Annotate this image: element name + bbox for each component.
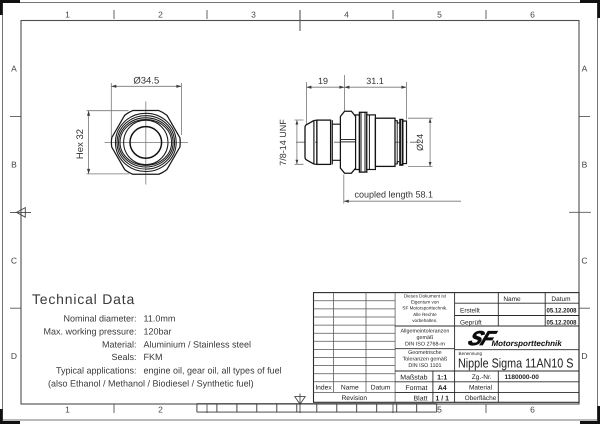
svg-text:5: 5 xyxy=(437,10,442,20)
svg-text:Ø24: Ø24 xyxy=(415,134,425,151)
svg-text:2: 2 xyxy=(158,10,163,20)
svg-text:05.12.2008: 05.12.2008 xyxy=(547,319,577,326)
svg-text:Geometrische: Geometrische xyxy=(408,350,442,356)
svg-text:7/8-14 UNF: 7/8-14 UNF xyxy=(278,119,288,166)
svg-text:A: A xyxy=(11,64,17,74)
svg-text:A: A xyxy=(582,64,588,74)
svg-text:Format: Format xyxy=(405,385,427,392)
svg-text:B: B xyxy=(582,159,588,169)
svg-text:Hex 32: Hex 32 xyxy=(75,129,86,159)
svg-text:1:1: 1:1 xyxy=(437,375,447,382)
svg-text:1: 1 xyxy=(65,10,70,20)
svg-text:05.12.2008: 05.12.2008 xyxy=(547,307,577,314)
svg-text:Oberfläche: Oberfläche xyxy=(465,395,497,402)
svg-text:DIN ISO 2768-m: DIN ISO 2768-m xyxy=(405,341,445,347)
svg-text:120bar: 120bar xyxy=(144,326,172,336)
svg-text:Allgemeintoleranzen: Allgemeintoleranzen xyxy=(400,328,449,334)
svg-text:Motorsporttechnik: Motorsporttechnik xyxy=(492,339,563,348)
svg-text:Material:: Material: xyxy=(102,339,137,349)
svg-text:Alle Rechte: Alle Rechte xyxy=(413,312,437,317)
svg-text:Seals:: Seals: xyxy=(111,352,136,362)
svg-text:C: C xyxy=(11,255,17,265)
svg-text:vorbehalten.: vorbehalten. xyxy=(412,318,437,323)
svg-text:Datum: Datum xyxy=(551,296,570,303)
svg-text:B: B xyxy=(11,159,17,169)
svg-text:Material: Material xyxy=(469,385,493,392)
svg-text:6: 6 xyxy=(530,10,535,20)
svg-text:Revision: Revision xyxy=(341,395,367,402)
svg-text:C: C xyxy=(581,255,587,265)
svg-text:engine oil, gear oil, all type: engine oil, gear oil, all types of fuel xyxy=(144,365,282,375)
svg-text:Erstellt: Erstellt xyxy=(460,307,480,314)
svg-text:A4: A4 xyxy=(438,385,447,392)
svg-text:Ø34.5: Ø34.5 xyxy=(133,76,159,87)
svg-text:Maßstab: Maßstab xyxy=(400,374,427,382)
svg-text:Blatt: Blatt xyxy=(413,394,427,402)
svg-text:Index: Index xyxy=(315,385,332,392)
svg-text:Nipple Sigma 11AN10 S: Nipple Sigma 11AN10 S xyxy=(458,356,574,371)
svg-text:Typical applications:: Typical applications: xyxy=(56,365,137,375)
svg-text:coupled length 58.1: coupled length 58.1 xyxy=(355,189,434,199)
svg-text:Name: Name xyxy=(341,385,359,392)
svg-text:SF Motorsporttechnik.: SF Motorsporttechnik. xyxy=(402,306,447,311)
svg-text:(also Ethanol / Methanol / Bio: (also Ethanol / Methanol / Biodiesel / S… xyxy=(48,378,254,388)
svg-text:6: 6 xyxy=(530,405,535,415)
svg-text:19: 19 xyxy=(318,76,328,86)
svg-text:D: D xyxy=(11,351,17,361)
svg-text:Dieses Dokument ist: Dieses Dokument ist xyxy=(404,294,447,299)
svg-text:11.0mm: 11.0mm xyxy=(144,313,176,323)
svg-text:4: 4 xyxy=(344,10,349,20)
svg-text:Max. working pressure:: Max. working pressure: xyxy=(43,326,136,336)
svg-text:Zg.-Nr.: Zg.-Nr. xyxy=(472,374,492,381)
svg-text:2: 2 xyxy=(158,405,163,415)
svg-text:1180000-00: 1180000-00 xyxy=(505,374,540,381)
svg-text:1 / 1: 1 / 1 xyxy=(435,394,449,402)
svg-text:gemäß: gemäß xyxy=(417,335,434,341)
svg-text:D: D xyxy=(581,351,587,361)
svg-text:Geprüft: Geprüft xyxy=(460,319,482,326)
svg-text:Toleranzen gemäß: Toleranzen gemäß xyxy=(403,356,448,362)
svg-text:5: 5 xyxy=(437,405,442,415)
svg-text:31.1: 31.1 xyxy=(366,76,384,86)
svg-text:DIN ISO 1101: DIN ISO 1101 xyxy=(408,363,441,369)
svg-text:Aluminium / Stainless steel: Aluminium / Stainless steel xyxy=(144,339,252,349)
svg-text:Eigentum von: Eigentum von xyxy=(411,300,440,305)
svg-text:FKM: FKM xyxy=(144,352,163,362)
svg-text:3: 3 xyxy=(251,10,256,20)
svg-text:1: 1 xyxy=(65,405,70,415)
svg-text:Nominal diameter:: Nominal diameter: xyxy=(63,313,136,323)
svg-text:Name: Name xyxy=(503,296,521,303)
svg-text:Datum: Datum xyxy=(371,385,391,392)
svg-text:Technical Data: Technical Data xyxy=(32,291,135,307)
